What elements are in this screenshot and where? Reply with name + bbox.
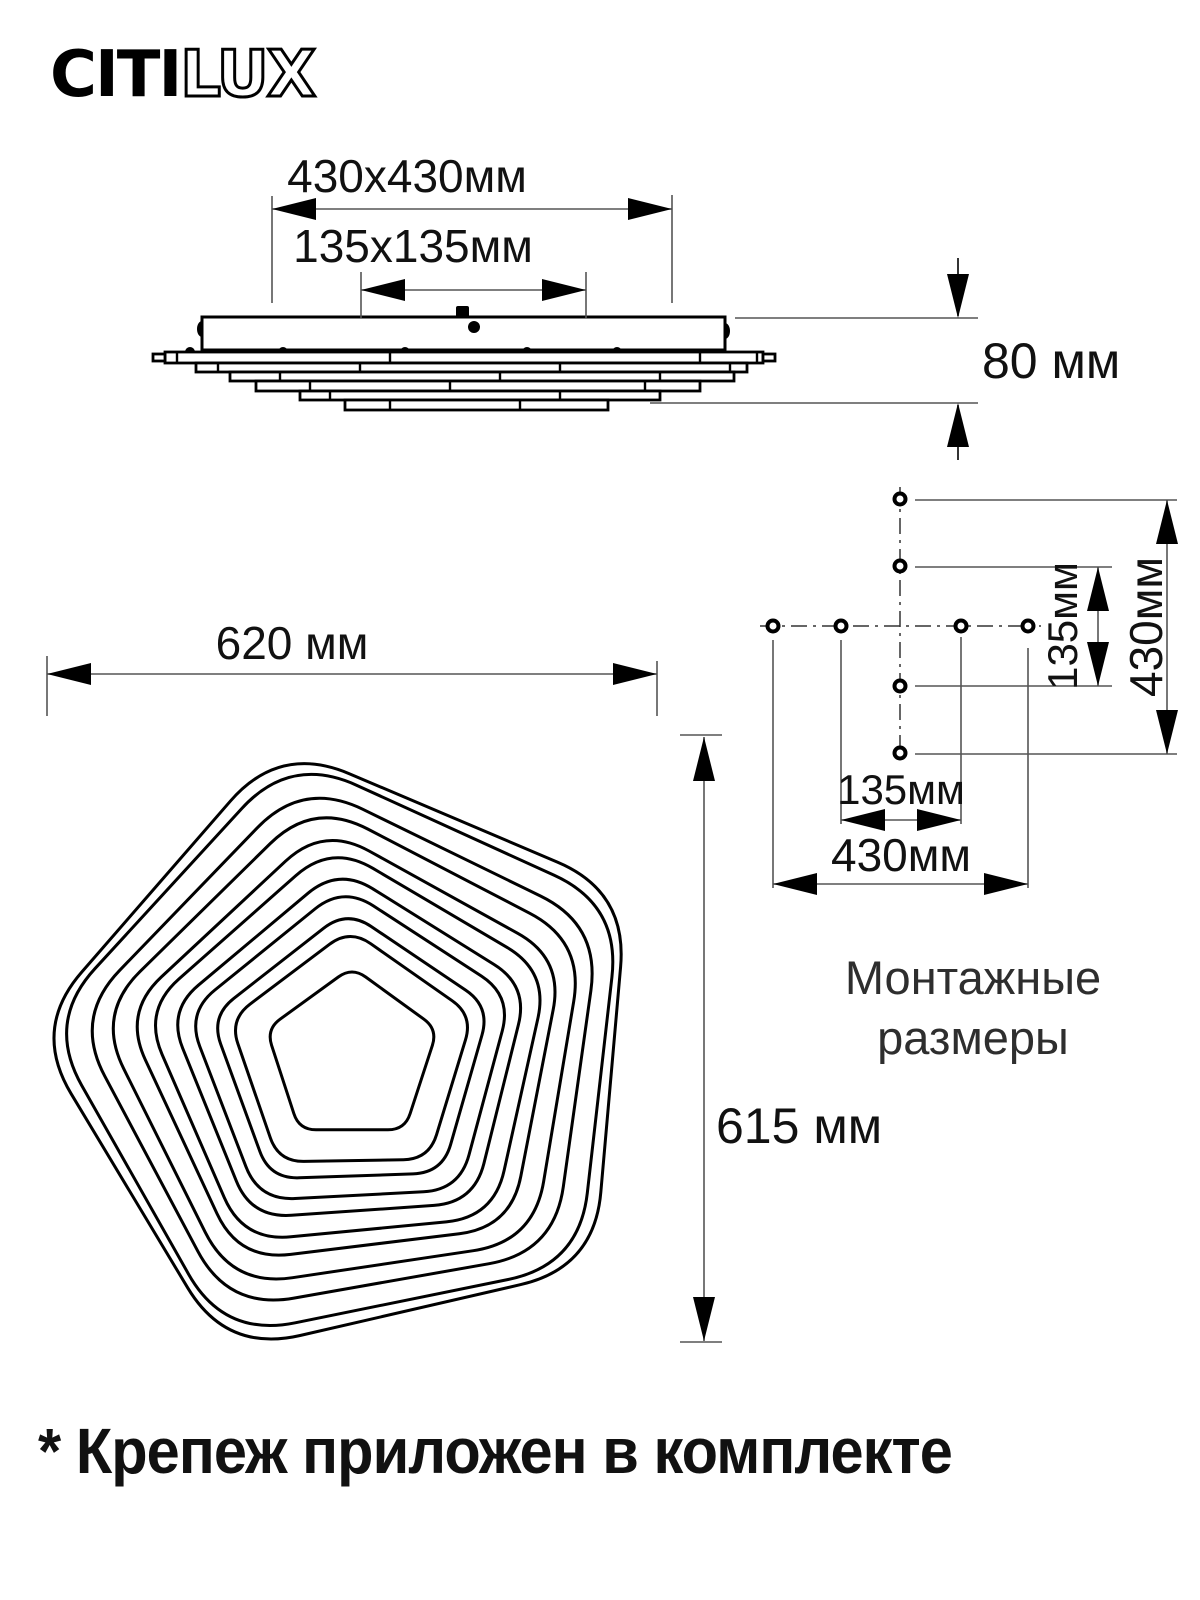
technical-drawing-canvas <box>0 0 1200 1600</box>
mounting-vertical-outer-dimension-label: 430мм <box>1119 557 1173 697</box>
side-view-inner-dimension-label: 135x135мм <box>293 219 533 273</box>
spec-sheet-page: CITILUX 430x430мм 135x135мм 80 мм 620 мм… <box>0 0 1200 1600</box>
brand-logo: CITILUX <box>50 38 314 112</box>
mounting-caption-line2: размеры <box>845 1008 1101 1068</box>
mounting-caption: Монтажные размеры <box>845 948 1101 1068</box>
side-view-height-dimension-label: 80 мм <box>982 332 1120 390</box>
mounting-horizontal-inner-dimension-label: 135мм <box>837 766 965 814</box>
footnote-text: * Крепеж приложен в комплекте <box>38 1414 952 1488</box>
mounting-horizontal-outer-dimension-label: 430мм <box>831 828 971 882</box>
side-view-drawing <box>153 306 775 410</box>
plan-height-dimension-label: 615 мм <box>716 1097 882 1155</box>
brand-logo-outline: LUX <box>180 38 314 112</box>
plan-view-drawing <box>54 764 621 1339</box>
mounting-vertical-inner-dimension-label: 135мм <box>1039 562 1087 690</box>
plan-view-dimensions <box>47 656 722 1342</box>
mounting-caption-line1: Монтажные <box>845 948 1101 1008</box>
plan-width-dimension-label: 620 мм <box>216 616 369 670</box>
side-view-outer-dimension-label: 430x430мм <box>287 149 527 203</box>
brand-logo-solid: CITI <box>50 38 180 112</box>
